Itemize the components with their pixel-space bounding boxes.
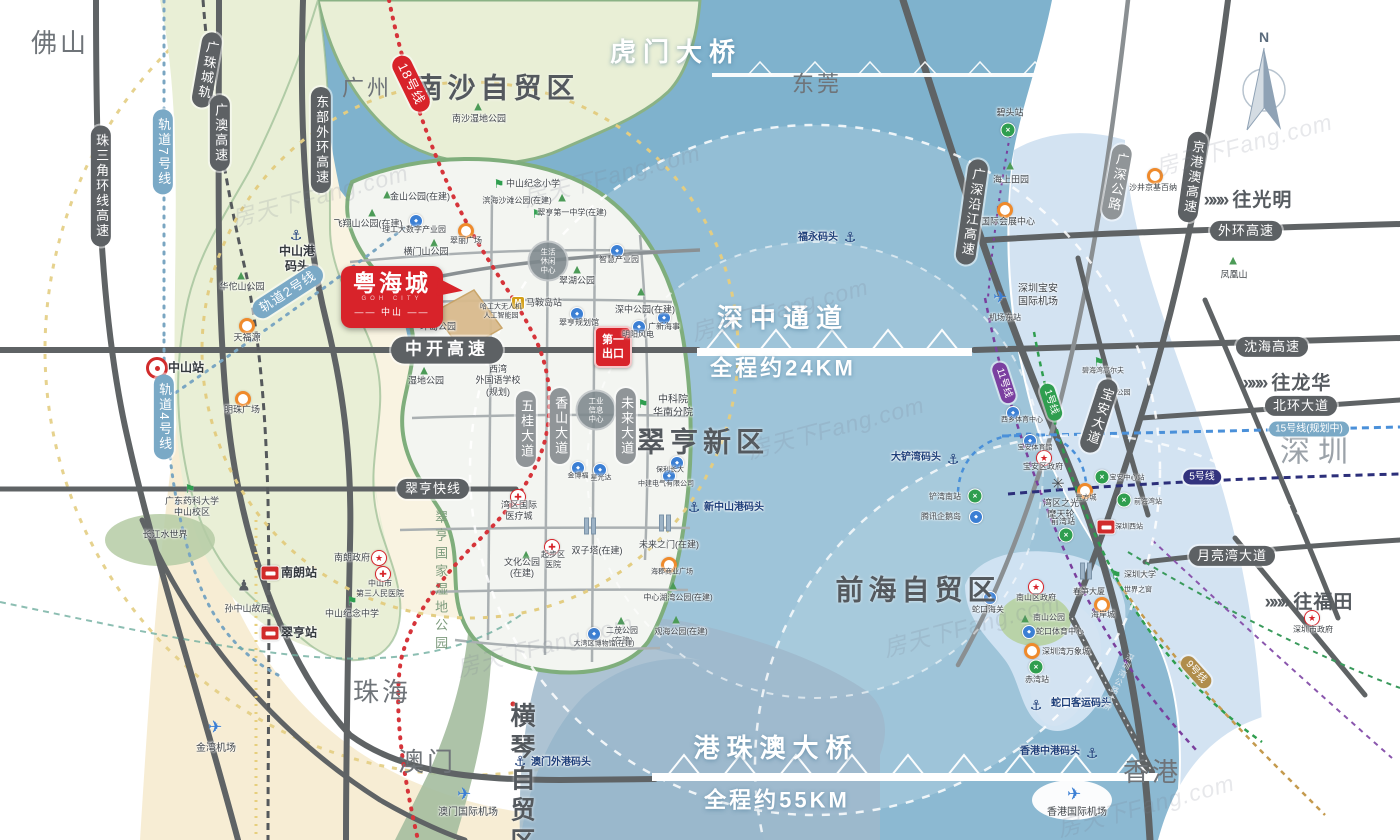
poi-label: 金博福 [568, 473, 589, 482]
poi-label: 湿地公园 [408, 375, 444, 386]
poi-tower-icon [1079, 563, 1093, 580]
poi-park-icon: ▲ [670, 613, 683, 626]
city-zhuhai: 珠海 [353, 676, 411, 709]
city-dongguan: 东莞 [792, 70, 842, 98]
poi-label: 翠丽广场 [450, 236, 482, 246]
poi-label: 中建电气有限公司 [638, 481, 694, 490]
poi-label: 腾讯企鹅岛 [921, 512, 961, 522]
road-shenhai: 沈海高速 [1236, 337, 1308, 357]
poi-tower-icon [658, 515, 672, 532]
poi-ferris-icon: ✳ [1051, 477, 1064, 493]
road-prd-ring: 珠三角环线高速 [91, 126, 111, 247]
logo-title: 粤海城 [341, 271, 443, 295]
poi-label: 哈工大无人机 人工智能园 [480, 303, 522, 321]
poi-label: 赤湾站 [1025, 675, 1049, 685]
poi-label: 深圳大学 [1124, 570, 1156, 580]
poi-label: 理工大数字产业园 [382, 225, 446, 235]
poi-label: 海上田园 [993, 174, 1029, 185]
poi-label: 福永码头 [798, 232, 838, 245]
direction-futian: »»»往福田 [1265, 591, 1354, 615]
poi-label: 智慧产业园 [599, 255, 639, 265]
road-outer-ring: 外环高速 [1210, 221, 1282, 241]
poi-label: 春笋大厦 [1073, 587, 1105, 597]
poi-label: 南朗站 [281, 566, 317, 581]
poi-label: 宝安区政府 [1023, 462, 1063, 472]
poi-label: 长江水世界 [142, 529, 187, 540]
city-foshan: 佛山 [31, 27, 89, 60]
map-canvas: N 佛山广州东莞珠海澳门香港深圳南沙自贸区翠亨新区前海自贸区横琴自贸区虎门大桥深… [0, 0, 1400, 840]
poi-shop-icon [1024, 643, 1040, 659]
road-cuiheng-express: 翠亨快线 [397, 479, 469, 499]
line-5: 5号线 [1183, 470, 1221, 485]
poi-metro-icon: × [1001, 123, 1016, 138]
poi-label: 新中山港码头 [704, 502, 764, 515]
logo-pointer [436, 278, 464, 299]
poi-rail-icon [261, 566, 280, 581]
poi-label: 香港中港码头 [1020, 746, 1080, 759]
poi-label: 金山公园(在建) [390, 191, 450, 202]
poi-label: 广新海事 [648, 322, 680, 332]
poi-label: 深中公园(在建) [615, 304, 675, 315]
poi-label: 深圳西站 [1115, 524, 1143, 533]
poi-gov-icon: ★ [371, 550, 387, 566]
poi-label: 深圳市政府 [1293, 625, 1333, 635]
poi-label: 湾区国际 医疗城 [501, 500, 537, 523]
poi-label: 世界之窗 [1124, 587, 1152, 596]
poi-air-icon: ✈ [993, 289, 1007, 306]
poi-park-icon: ▲ [571, 263, 584, 276]
poi-label: 西湾 外国语学校 (规划) [475, 364, 520, 398]
watermark: 房天下Fang.com [520, 139, 703, 214]
poi-metro-icon: × [1095, 470, 1110, 485]
road-beihuan: 北环大道 [1265, 396, 1337, 416]
poi-label: 横门山公园 [403, 246, 448, 257]
city-shenzhen: 深圳 [1280, 433, 1356, 471]
project-logo: 粤海城 GOH CITY 中山 [341, 266, 443, 328]
poi-label: 前海湾站 [1134, 499, 1162, 508]
logo-subtitle: GOH CITY [341, 296, 443, 302]
logo-city: 中山 [341, 305, 443, 318]
poi-label: 中山市 第三人民医院 [356, 579, 404, 599]
poi-label: 宝安体育馆 [1018, 445, 1053, 454]
city-macau: 澳门 [398, 746, 456, 779]
road-guangshen: 广深公路 [1100, 143, 1133, 221]
distance-24km: 全程约24KM [710, 354, 856, 382]
poi-ship-icon: ⚓ [1086, 746, 1099, 760]
poi-label: 翠亨站 [281, 626, 317, 641]
chevrons-icon: »»» [1243, 373, 1266, 394]
chevrons-icon: »»» [1204, 190, 1227, 211]
poi-metro-icon: × [1059, 528, 1074, 543]
poi-rail-icon [261, 626, 280, 641]
poi-park-icon: ▲ [1227, 254, 1240, 267]
road-east-outer-ring: 东部外环高速 [311, 87, 331, 193]
poi-label: 华佗山公园 [219, 281, 264, 292]
poi-label: 碧头站 [996, 107, 1023, 118]
poi-rail-icon [1097, 520, 1116, 535]
line-9: 9号线 [1178, 653, 1214, 691]
road-zhongkai: 中开高速 [391, 337, 503, 364]
poi-label: 西乡体育中心 [1001, 417, 1043, 426]
poi-air-icon: ✈ [457, 786, 471, 803]
direction-longhua: »»»往龙华 [1243, 372, 1332, 396]
poi-label: 深圳湾万象城 [1042, 647, 1090, 657]
poi-label: 中山纪念中学 [325, 608, 379, 619]
poi-biz-icon: ◆ [1022, 625, 1036, 639]
poi-gcircle-icon: 工业 信息 中心 [576, 390, 617, 431]
poi-label: 观海公园(在建) [654, 627, 707, 637]
poi-label: 文化公园 (在建) [504, 557, 540, 580]
poi-park-icon: ▲ [235, 269, 248, 282]
line-15: 15号线(规划中) [1269, 422, 1349, 437]
poi-label: 广东药科大学 中山校区 [165, 496, 219, 519]
line-rail4: 轨道4号线 [154, 374, 174, 459]
poi-biz-icon: ◆ [969, 510, 983, 524]
poi-label: 壹方城 [1076, 495, 1097, 504]
watermark: 房天下Fang.com [1152, 108, 1335, 183]
road-xiangshan: 香山大道 [550, 388, 570, 464]
poi-label: 星光达 [591, 475, 612, 484]
road-baoan: 宝安大道 [1078, 377, 1121, 456]
poi-metro-icon: × [1029, 660, 1044, 675]
road-weilai: 未来大道 [616, 388, 636, 464]
poi-label: 铲湾南站 [929, 492, 961, 502]
poi-school-icon: ⚑ [638, 398, 649, 410]
poi-label: 起步区 医院 [541, 550, 565, 570]
poi-school-icon: ⚑ [1111, 569, 1122, 581]
poi-label: 碧海湾高尔夫 [1082, 368, 1124, 377]
poi-label: 机场东站 [989, 313, 1021, 323]
poi-label: 宝安中心站 [1110, 475, 1145, 484]
poi-label: 海岸城 [1091, 610, 1115, 620]
poi-metro-icon: × [968, 489, 983, 504]
poi-label: 翠亨规划馆 [559, 318, 599, 328]
poi-label: 中科院 华南分院 [653, 395, 693, 420]
poi-label: 前湾站 [1051, 517, 1075, 527]
zone-nansha: 南沙自贸区 [414, 71, 579, 106]
line-11: 11号线 [990, 361, 1017, 406]
poi-label: 未来之门(在建) [639, 539, 699, 550]
poi-label: 澳门国际机场 [438, 807, 498, 820]
zone-hengqin: 横琴自贸区 [511, 702, 516, 707]
poi-park-icon: ▲ [366, 206, 379, 219]
direction-guangming: »»»往光明 [1204, 189, 1293, 213]
poi-label: 保利长大 [656, 467, 684, 476]
poi-label: 明珠广场 [224, 404, 260, 415]
line-rail7: 轨道7号线 [153, 109, 173, 194]
poi-label: 中心湖湾公园(在建) [643, 593, 712, 603]
poi-label: 沙井京基百纳 [1129, 183, 1177, 193]
poi-statue-icon: ♟ [237, 579, 250, 594]
map-labels-layer: 佛山广州东莞珠海澳门香港深圳南沙自贸区翠亨新区前海自贸区横琴自贸区虎门大桥深中通… [0, 0, 1400, 840]
bridge-hzmb: 港珠澳大桥 [693, 732, 858, 765]
poi-label: 大铲湾码头 [891, 452, 941, 465]
poi-ship-icon: ⚓ [290, 228, 303, 242]
poi-label: 凤凰山 [1220, 269, 1247, 280]
poi-ship-icon: ⚓ [688, 500, 701, 514]
road-yueliangwan: 月亮湾大道 [1189, 546, 1275, 566]
poi-label: 国际会展中心 [981, 216, 1035, 227]
poi-label: 南沙湿地公园 [452, 113, 506, 124]
poi-tower-icon [583, 518, 597, 535]
poi-school-icon: ⚑ [494, 178, 505, 190]
poi-ship-icon: ⚓ [1030, 698, 1043, 712]
road-wugui: 五桂大道 [516, 391, 536, 467]
poi-school-icon: ⚑ [185, 483, 196, 495]
distance-55km: 全程约55KM [704, 786, 850, 814]
poi-label: 双子塔(在建) [572, 545, 623, 556]
poi-air-icon: ✈ [1067, 786, 1081, 803]
poi-air-icon: ✈ [208, 719, 222, 736]
poi-label: 天福源 [233, 332, 260, 343]
poi-label: 金湾机场 [196, 743, 236, 756]
road-yanjiang: 广深沿江高速 [955, 158, 990, 266]
poi-label: 孙中山故居 [224, 603, 269, 614]
bridge-shenzhenwan: 深圳湾公路大桥 [1100, 651, 1136, 712]
poi-label: 翠亨第一中学(在建) [537, 208, 606, 218]
city-guangzhou: 广州 [342, 74, 392, 102]
chevrons-icon: »»» [1265, 592, 1288, 613]
poi-ship-icon: ⚓ [947, 452, 960, 466]
poi-label: 中山站 [168, 361, 204, 376]
poi-label: 海郡商业广场 [651, 569, 693, 578]
poi-metro-icon: × [1117, 493, 1132, 508]
poi-label: 马鞍岛站 [526, 297, 562, 308]
poi-park-icon: ▲ [667, 579, 680, 592]
poi-park-icon: ▲ [1004, 159, 1017, 172]
poi-label: 深圳宝安 国际机场 [1018, 284, 1058, 309]
poi-ship-icon: ⚓ [844, 230, 857, 244]
poi-label: 南朗政府 [334, 552, 370, 563]
zone-qianhai: 前海自贸区 [835, 573, 1000, 608]
poi-label: 翠湖公园 [559, 275, 595, 286]
poi-golf-icon: ⚑ [1094, 356, 1105, 368]
bridge-humen: 虎门大桥 [610, 36, 742, 69]
poi-label: 蛇口体育中心 [1036, 627, 1084, 637]
road-guangao: 广澳高速 [210, 95, 230, 171]
label-cuiheng-wetland: 翠亨国家湿地公园 [432, 510, 448, 654]
poi-park-icon: ▲ [635, 285, 648, 298]
